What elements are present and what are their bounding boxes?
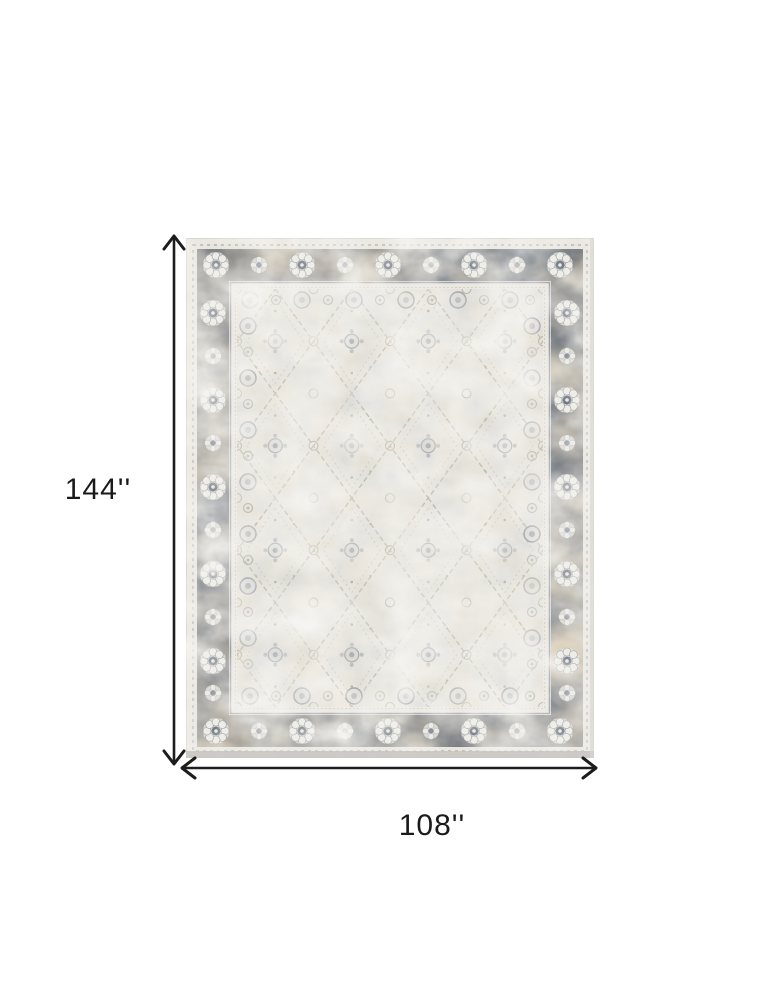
height-dimension-label: 144'': [53, 474, 143, 506]
rug-image: [186, 238, 594, 758]
height-dimension-arrow: [162, 233, 186, 767]
width-dimension-label: 108'': [382, 810, 482, 842]
product-dimension-diagram: 144'' 108'': [0, 0, 780, 1000]
width-dimension-arrow: [179, 756, 599, 780]
rug-image-container: [186, 238, 594, 758]
